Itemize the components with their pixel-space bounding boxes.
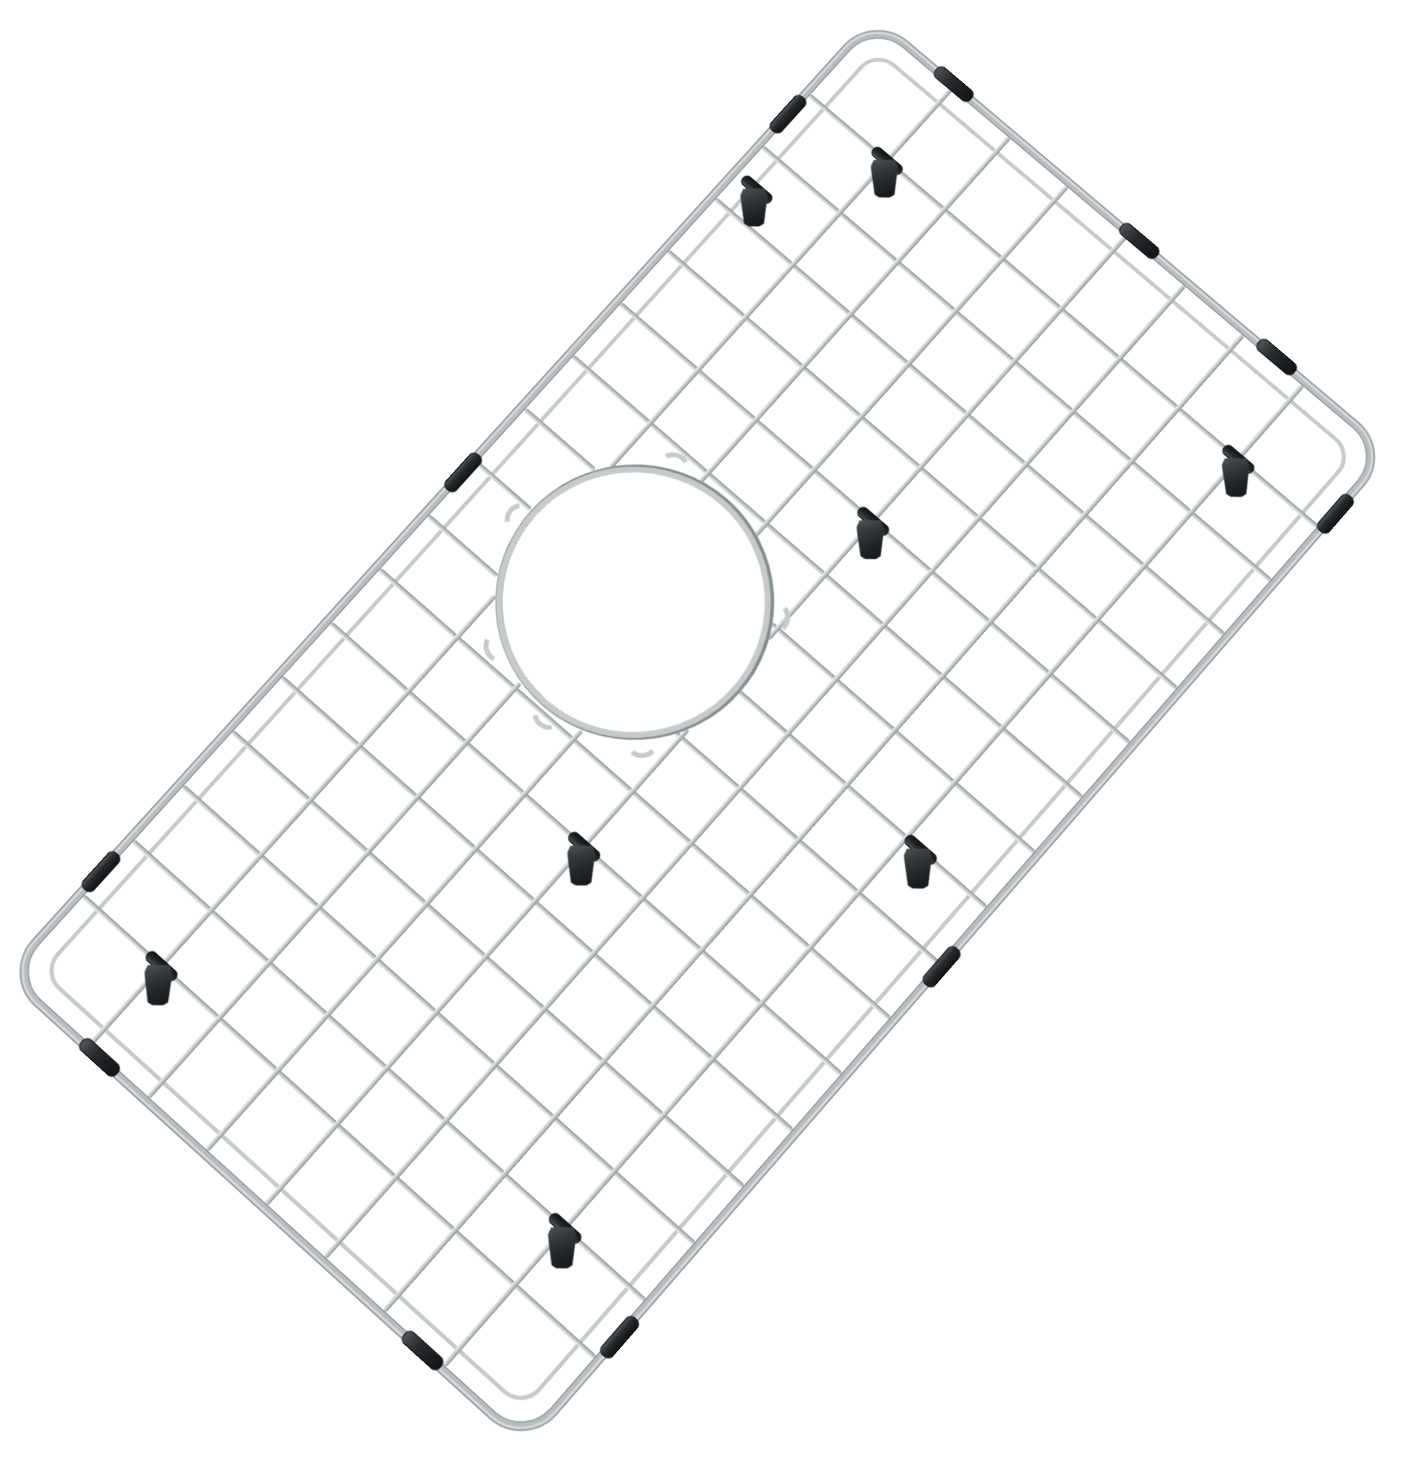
product-photo — [0, 0, 1405, 1468]
support-foot — [740, 188, 768, 226]
support-foot — [143, 964, 172, 1005]
support-foot — [547, 1227, 576, 1268]
support-foot — [870, 159, 898, 197]
support-foot — [856, 520, 884, 559]
sink-bottom-grid — [1, 13, 1392, 1449]
support-foot — [566, 845, 594, 885]
